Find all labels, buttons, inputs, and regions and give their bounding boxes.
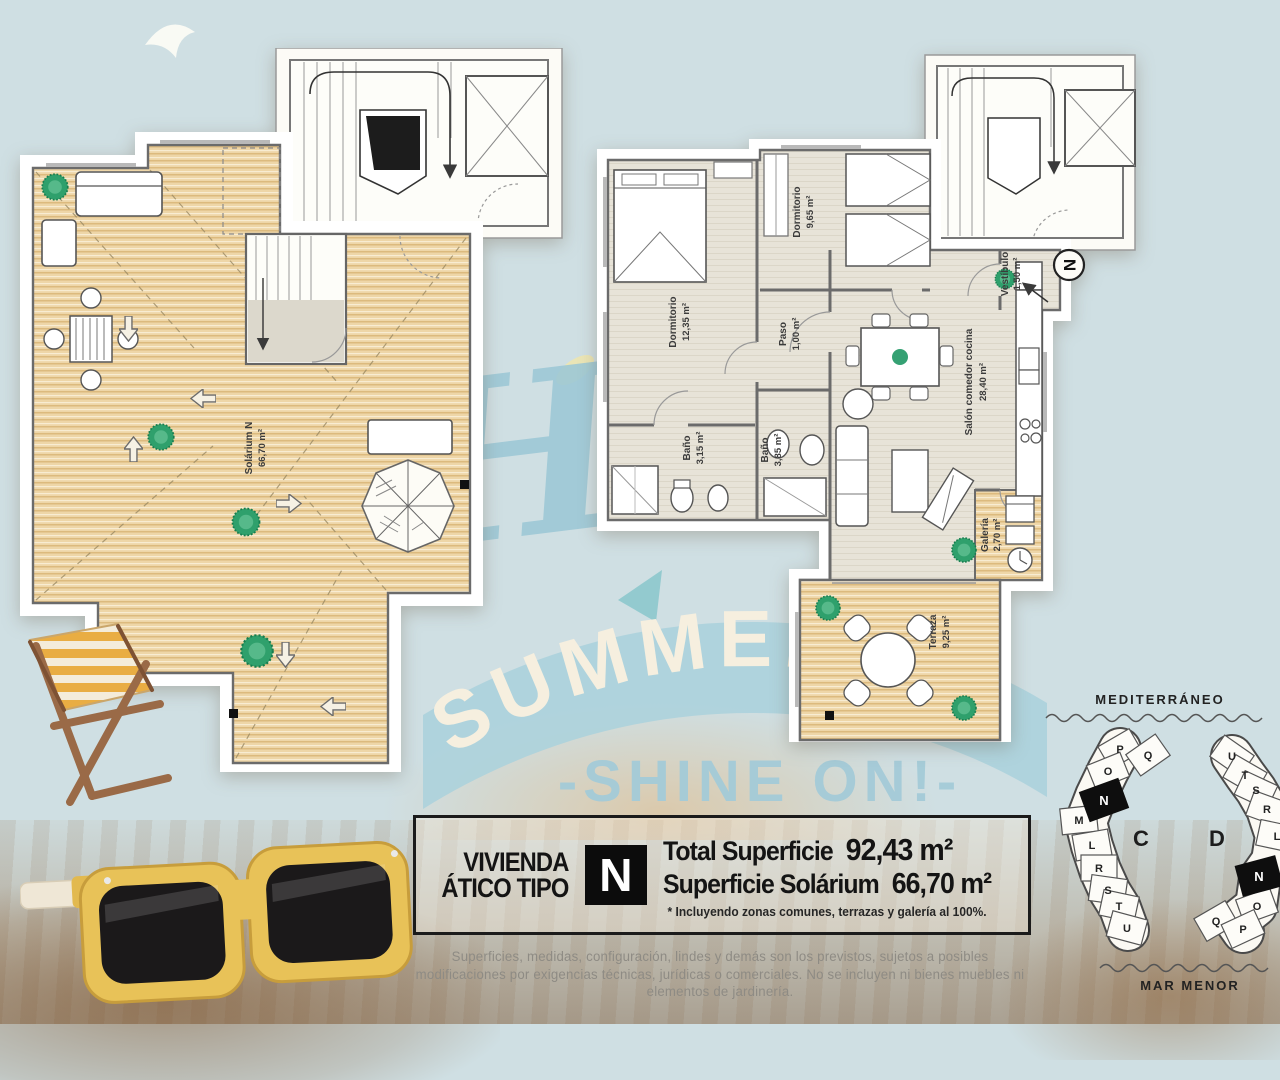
galeria-appliances (1006, 496, 1034, 572)
svg-text:Dormitorio: Dormitorio (668, 296, 679, 347)
type-summary-box: VIVIENDA ÁTICO TIPO N Total Superficie 9… (413, 815, 1031, 935)
solarium-sofa (76, 172, 162, 216)
total-surface-label: Total Superficie (663, 836, 833, 867)
stair-newel (988, 118, 1040, 194)
plant-icon (241, 635, 273, 667)
legal-disclaimer: Superficies, medidas, configuración, lin… (406, 948, 1033, 1001)
svg-text:Q: Q (1144, 750, 1153, 762)
solarium-inner-stair-room (246, 234, 346, 364)
solarium-deck: Solárium N 66,70 m² (33, 142, 470, 763)
svg-text:P: P (1116, 744, 1123, 756)
svg-text:R: R (1095, 863, 1103, 875)
solarium-surface-label: Superficie Solárium (663, 869, 879, 900)
svg-text:U: U (1123, 923, 1131, 935)
site-location-map: MEDITERRÁNEO P Q O N M L R S T U (1040, 656, 1280, 1024)
svg-text:U: U (1228, 751, 1236, 763)
sea-label-mar-menor: MAR MENOR (1140, 978, 1240, 993)
building-d: U T S R L N O Q P (1194, 735, 1280, 948)
solarium-lounger (368, 420, 452, 454)
column-marker (229, 709, 238, 718)
dwelling-type-title: VIVIENDA ÁTICO TIPO (442, 849, 569, 902)
svg-text:Terraza: Terraza (928, 614, 939, 649)
svg-text:Q: Q (1212, 916, 1221, 928)
svg-text:N: N (1254, 869, 1263, 884)
solarium-armchair (42, 220, 76, 266)
total-surface-value: 92,43 m² (846, 832, 953, 868)
solarium-stairwell (276, 48, 562, 238)
solarium-floor-plan: Solárium N 66,70 m² (8, 48, 568, 772)
svg-text:P: P (1239, 924, 1246, 936)
svg-text:1,50 m²: 1,50 m² (1012, 258, 1023, 291)
room-label: Solárium N (244, 422, 255, 475)
svg-text:12,35 m²: 12,35 m² (681, 303, 692, 341)
plant-icon (952, 538, 976, 562)
north-compass-icon: N (1054, 250, 1084, 280)
building-c-label: C (1133, 826, 1149, 851)
dwelling-line-1: VIVIENDA (442, 849, 569, 875)
plant-icon (816, 596, 840, 620)
svg-text:Galería: Galería (980, 518, 991, 552)
sun-umbrella (362, 460, 454, 552)
plant-icon (233, 509, 260, 536)
svg-text:N: N (1060, 259, 1079, 271)
building-c: P Q O N M L R S T U (1060, 729, 1170, 945)
surface-summary: Total Superficie 92,43 m² Superficie Sol… (663, 832, 991, 919)
svg-text:Baño: Baño (682, 436, 693, 461)
room-area: 66,70 m² (257, 429, 268, 467)
type-letter-badge: N (585, 845, 647, 905)
svg-text:O: O (1104, 766, 1113, 778)
svg-text:3,15 m²: 3,15 m² (695, 432, 706, 465)
apartment-floor-plan: Dormitorio 12,35 m² Dormitorio 9,65 m² P… (596, 52, 1141, 742)
svg-text:T: T (1116, 901, 1123, 913)
dwelling-line-2: ÁTICO TIPO (442, 875, 569, 901)
svg-text:9,25 m²: 9,25 m² (941, 616, 952, 649)
plant-icon (42, 174, 68, 200)
svg-text:2,70 m²: 2,70 m² (992, 519, 1003, 552)
column-marker (460, 480, 469, 489)
building-d-label: D (1209, 826, 1225, 851)
svg-text:S: S (1104, 885, 1111, 897)
plant-icon (952, 696, 976, 720)
svg-text:Salón comedor cocina: Salón comedor cocina (964, 328, 975, 435)
svg-text:R: R (1263, 804, 1271, 816)
svg-text:Dormitorio: Dormitorio (792, 186, 803, 237)
svg-text:28,40 m²: 28,40 m² (978, 363, 989, 401)
plant-icon (892, 349, 908, 365)
svg-text:1,00 m²: 1,00 m² (791, 318, 802, 351)
svg-text:Vestíbulo: Vestíbulo (1000, 252, 1011, 296)
coastline-wave-top (1046, 715, 1262, 722)
sea-label-mediterraneo: MEDITERRÁNEO (1095, 692, 1224, 707)
svg-text:L: L (1274, 831, 1280, 843)
svg-text:3,85 m²: 3,85 m² (773, 434, 784, 467)
surface-footnote: * Incluyendo zonas comunes, terrazas y g… (663, 904, 991, 919)
coastline-wave-bottom (1100, 965, 1268, 972)
svg-text:9,65 m²: 9,65 m² (805, 196, 816, 229)
svg-text:L: L (1089, 840, 1096, 852)
column-marker (825, 711, 834, 720)
solarium-surface-value: 66,70 m² (892, 868, 991, 901)
svg-text:S: S (1252, 785, 1259, 797)
apartment-stairwell (925, 55, 1135, 250)
svg-text:T: T (1242, 770, 1249, 782)
svg-text:N: N (1099, 793, 1108, 808)
svg-text:M: M (1074, 815, 1083, 827)
svg-text:Baño: Baño (760, 438, 771, 463)
svg-text:O: O (1253, 901, 1262, 913)
plant-icon (148, 424, 174, 450)
stair-newel-hatch (366, 116, 420, 170)
svg-text:Paso: Paso (778, 322, 789, 346)
